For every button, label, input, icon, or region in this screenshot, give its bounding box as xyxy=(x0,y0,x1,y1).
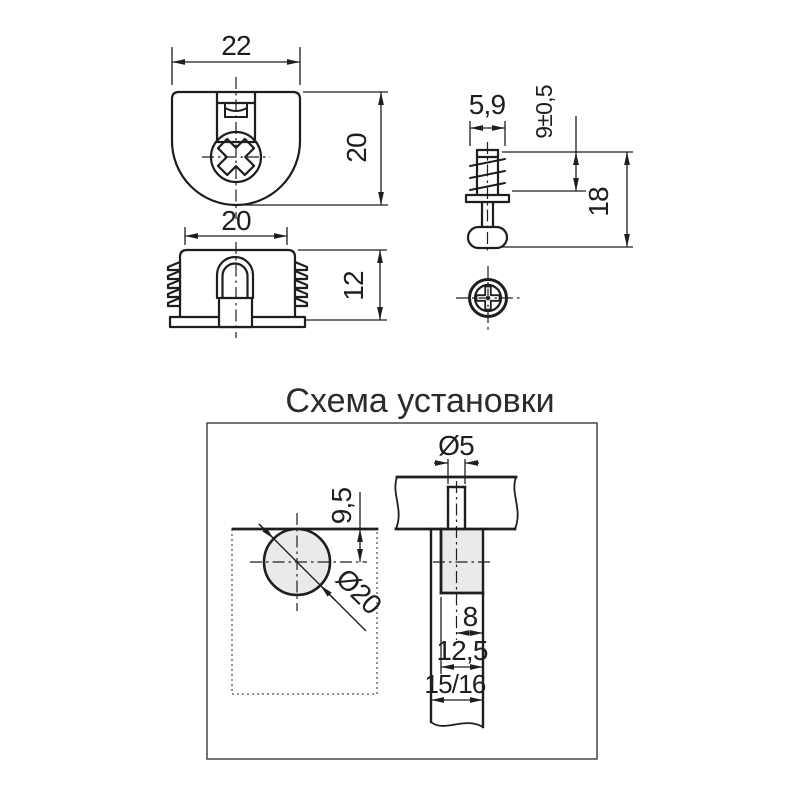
dim-dowel-total-length-label: 18 xyxy=(583,187,614,217)
page-title: Схема установки xyxy=(285,382,554,420)
dowel-side-view xyxy=(466,142,509,254)
dim-pin-axis-offset: 8 xyxy=(457,601,484,633)
dim-cam-width-label: 22 xyxy=(221,30,251,61)
dim-cam-height-label: 20 xyxy=(341,133,372,163)
installation-section-view: Ø5 8 12,5 15/16 xyxy=(395,430,517,727)
dim-cam-side-width-label: 20 xyxy=(221,205,251,236)
dim-dowel-total-length: 18 xyxy=(500,152,633,247)
drawing-canvas: 22 20 20 xyxy=(0,0,800,800)
installation-diagram-frame xyxy=(207,423,597,759)
cam-keyhole-inner xyxy=(223,264,248,299)
dim-cam-side-width: 20 xyxy=(185,205,287,245)
dim-dowel-thread-length-label: 9±0,5 xyxy=(531,85,557,138)
dim-dowel-thread-diameter: 5,9 xyxy=(469,89,506,146)
dim-cam-height: 20 xyxy=(239,92,388,205)
dim-panel-thickness: 15/16 xyxy=(424,669,485,700)
cam-side-view xyxy=(168,242,307,338)
dim-cam-side-height-label: 12 xyxy=(338,271,369,301)
dim-pin-hole-diameter-label: Ø5 xyxy=(438,430,474,461)
dim-cam-width: 22 xyxy=(172,30,300,85)
technical-drawing-page: 22 20 20 xyxy=(0,0,800,800)
dim-dowel-thread-diameter-label: 5,9 xyxy=(469,89,506,120)
installation-face-view: 9,5 Ø20 xyxy=(232,488,388,694)
dowel-end-view xyxy=(456,266,521,330)
dim-cam-side-height: 12 xyxy=(298,250,387,320)
dim-edge-distance: 9,5 xyxy=(326,488,360,562)
dim-cam-hole-depth-label: 12,5 xyxy=(436,635,488,666)
dim-cam-hole-diameter-label: Ø20 xyxy=(330,562,388,620)
dim-pin-axis-offset-label: 8 xyxy=(463,601,478,632)
cam-hole-section-fill xyxy=(441,529,483,593)
dim-panel-thickness-label: 15/16 xyxy=(424,669,485,699)
cam-top-view xyxy=(172,77,300,219)
dim-edge-distance-label: 9,5 xyxy=(326,488,357,525)
dim-dowel-thread-length: 9±0,5 xyxy=(502,85,633,191)
